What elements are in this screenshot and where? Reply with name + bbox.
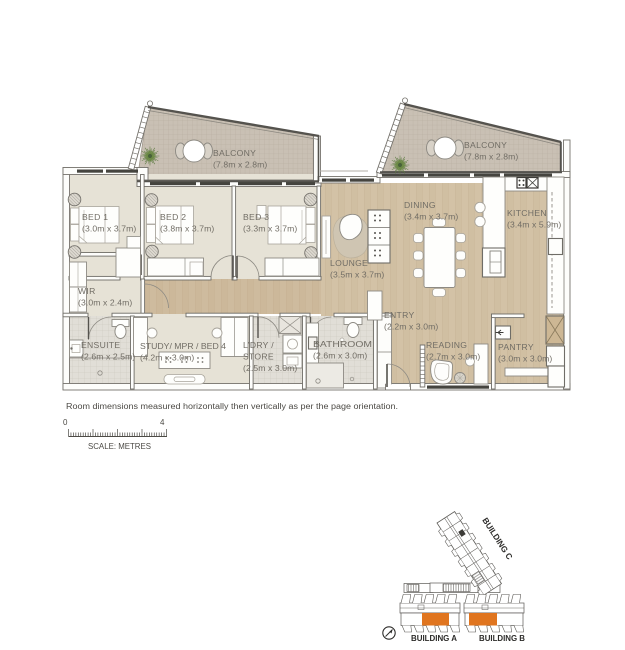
svg-text:KITCHEN: KITCHEN xyxy=(507,208,547,218)
svg-text:BED 2: BED 2 xyxy=(160,212,186,222)
svg-text:BED 1: BED 1 xyxy=(82,212,108,222)
svg-text:STUDY/ MPR / BED 4: STUDY/ MPR / BED 4 xyxy=(140,341,226,351)
svg-text:READING: READING xyxy=(426,340,467,350)
svg-text:Room dimensions measured horiz: Room dimensions measured horizontally th… xyxy=(66,402,398,411)
svg-text:(7.8m x 2.8m): (7.8m x 2.8m) xyxy=(464,152,518,162)
svg-text:(3.0m x 2.4m): (3.0m x 2.4m) xyxy=(78,298,132,308)
svg-text:BUILDING A: BUILDING A xyxy=(411,633,457,643)
svg-text:(3.4m x 3.7m): (3.4m x 3.7m) xyxy=(404,212,458,222)
svg-text:(3.5m x 3.7m): (3.5m x 3.7m) xyxy=(330,270,384,280)
svg-text:BED 3: BED 3 xyxy=(243,212,269,222)
svg-text:STORE: STORE xyxy=(243,352,274,362)
svg-text:(4.2m x 3.0m): (4.2m x 3.0m) xyxy=(140,353,194,363)
svg-text:(2.6m x 2.5m): (2.6m x 2.5m) xyxy=(81,352,135,362)
svg-text:DINING: DINING xyxy=(404,200,436,210)
svg-text:BALCONY: BALCONY xyxy=(464,140,507,150)
svg-text:LOUNGE: LOUNGE xyxy=(330,258,368,268)
svg-text:(7.8m x 2.8m): (7.8m x 2.8m) xyxy=(213,160,267,170)
svg-text:PANTRY: PANTRY xyxy=(498,342,534,352)
svg-text:(2.6m x 3.0m): (2.6m x 3.0m) xyxy=(313,351,367,361)
svg-text:BUILDING B: BUILDING B xyxy=(479,633,525,643)
svg-text:ENTRY: ENTRY xyxy=(384,310,414,320)
svg-text:L’DRY /: L’DRY / xyxy=(243,340,274,350)
svg-text:ENSUITE: ENSUITE xyxy=(81,340,120,350)
svg-text:WIR: WIR xyxy=(78,286,96,296)
svg-text:(2.7m x 3.0m): (2.7m x 3.0m) xyxy=(426,352,480,362)
svg-text:(3.3m x 3.7m): (3.3m x 3.7m) xyxy=(243,224,297,234)
svg-text:(2.5m x 3.0m): (2.5m x 3.0m) xyxy=(243,363,297,373)
svg-text:(3.0m x 3.0m): (3.0m x 3.0m) xyxy=(498,354,552,364)
svg-text:SCALE: METRES: SCALE: METRES xyxy=(88,442,151,451)
svg-text:BALCONY: BALCONY xyxy=(213,148,256,158)
svg-text:BATHROOM: BATHROOM xyxy=(313,339,372,349)
svg-text:(3.8m x 3.7m): (3.8m x 3.7m) xyxy=(160,224,214,234)
svg-text:(3.0m x 3.7m): (3.0m x 3.7m) xyxy=(82,224,136,234)
svg-text:4: 4 xyxy=(160,418,165,427)
svg-text:(3.4m x 5.9m): (3.4m x 5.9m) xyxy=(507,220,561,230)
svg-text:0: 0 xyxy=(63,418,68,427)
svg-text:(2.2m x 3.0m): (2.2m x 3.0m) xyxy=(384,322,438,332)
